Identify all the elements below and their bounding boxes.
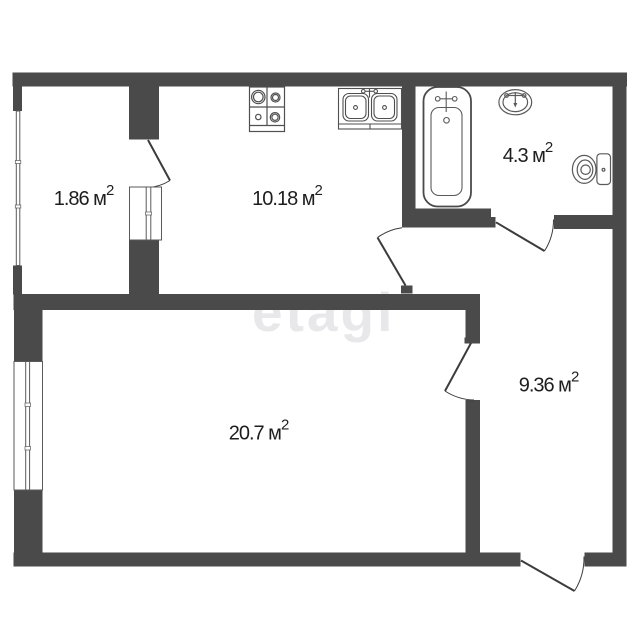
- svg-text:etagi: etagi: [252, 281, 395, 343]
